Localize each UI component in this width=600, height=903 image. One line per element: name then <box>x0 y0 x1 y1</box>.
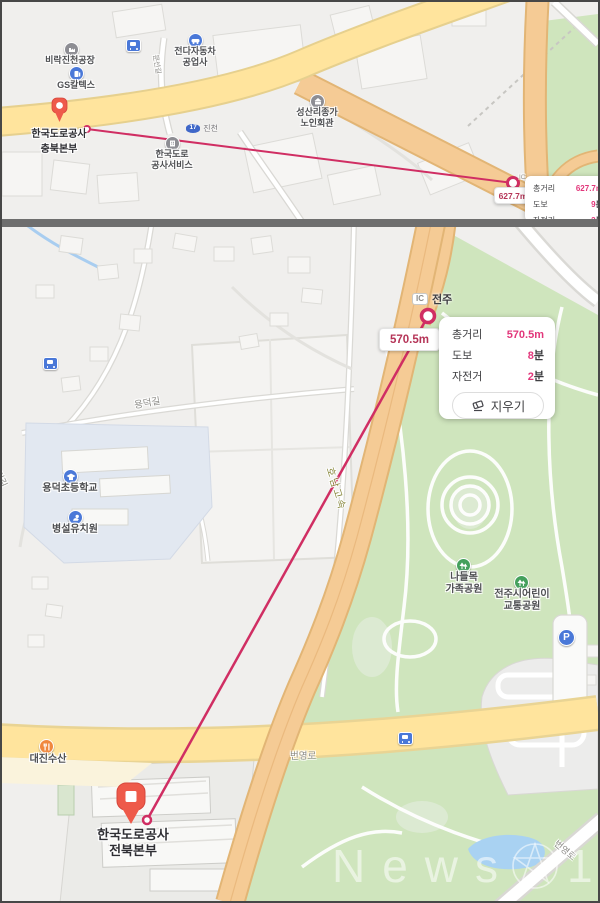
road-label-byeongyeong: 번영로 <box>290 748 316 762</box>
poi-daejin[interactable]: 대진수산 <box>30 754 67 766</box>
watermark: News 1 <box>332 839 598 893</box>
park-tree-icon[interactable] <box>456 558 471 573</box>
popup-row-walk: 도보 8분 <box>452 347 544 363</box>
poi-elementary[interactable]: 용덕초등학교 <box>42 483 97 495</box>
poi-motors[interactable]: 전다자동차 공업사 <box>174 46 215 67</box>
info-row-walk: 도보 9분 <box>533 199 598 210</box>
poi-gs[interactable]: GS칼텍스 <box>57 80 95 91</box>
poi-service[interactable]: 한국도로 공사서비스 <box>151 149 192 170</box>
info-row-bike: 자전거 2분 <box>533 215 598 219</box>
marker-label-chungbuk[interactable]: 한국도로공사 충북본부 <box>31 125 86 155</box>
poi-birak[interactable]: 비락진천공장 <box>45 55 95 66</box>
park-tree-icon[interactable] <box>514 575 529 590</box>
greenhouse <box>58 785 74 815</box>
map-bottom[interactable]: IC 전주 570.5m 총거리 570.5m 도보 8분 자전거 2분 지우기 <box>2 227 598 901</box>
poi-traffic-park[interactable]: 전주시어린이 교통공원 <box>494 589 549 613</box>
poi-seongsan[interactable]: 성산리종가 노인회관 <box>296 107 337 128</box>
parking-icon[interactable]: P <box>558 629 575 646</box>
info-card-top: 총거리 627.7m 도보 9분 자전거 2분 <box>525 176 598 219</box>
clear-button[interactable]: 지우기 <box>452 392 544 419</box>
bus-stop-icon[interactable] <box>126 39 141 52</box>
measure-popup: 총거리 570.5m 도보 8분 자전거 2분 지우기 <box>439 317 555 419</box>
popup-row-bike: 자전거 2분 <box>452 368 544 384</box>
bus-stop-icon[interactable] <box>398 732 413 745</box>
restaurant-icon[interactable] <box>39 739 54 754</box>
ic-badge: IC <box>412 293 428 305</box>
gas-station-icon[interactable] <box>69 66 84 81</box>
route-badge-jincheon: 17 진천 <box>186 123 218 134</box>
image-divider <box>2 219 598 227</box>
school-icon[interactable] <box>63 469 78 484</box>
kindergarten-icon[interactable] <box>68 510 83 525</box>
poi-kindergarten[interactable]: 병설유치원 <box>52 524 98 536</box>
marker-pin-jeonbuk[interactable] <box>114 782 148 827</box>
marker-pin-chungbuk[interactable] <box>50 97 69 125</box>
popup-row-total: 총거리 570.5m <box>452 326 544 342</box>
bus-stop-icon[interactable] <box>43 357 58 370</box>
marker-label-jeonbuk[interactable]: 한국도로공사 전북본부 <box>97 827 169 860</box>
measure-end-point-bottom[interactable] <box>422 310 435 323</box>
poi-family-park[interactable]: 나들목 가족공원 <box>446 572 483 596</box>
map-top[interactable]: 비락진천공장 GS칼텍스 전다자동차 공업사 성산리종가 노인회관 한국도로 공… <box>2 2 598 219</box>
ic-jeonju-label[interactable]: IC 전주 <box>412 291 452 307</box>
watermark-globe-icon <box>509 840 561 892</box>
screenshot-frame: 비락진천공장 GS칼텍스 전다자동차 공업사 성산리종가 노인회관 한국도로 공… <box>0 0 600 903</box>
eraser-icon <box>471 399 485 412</box>
distance-box-bottom: 570.5m <box>379 328 440 351</box>
info-row-total: 총거리 627.7m <box>533 183 598 194</box>
route-number-badge: 17 <box>186 124 200 133</box>
